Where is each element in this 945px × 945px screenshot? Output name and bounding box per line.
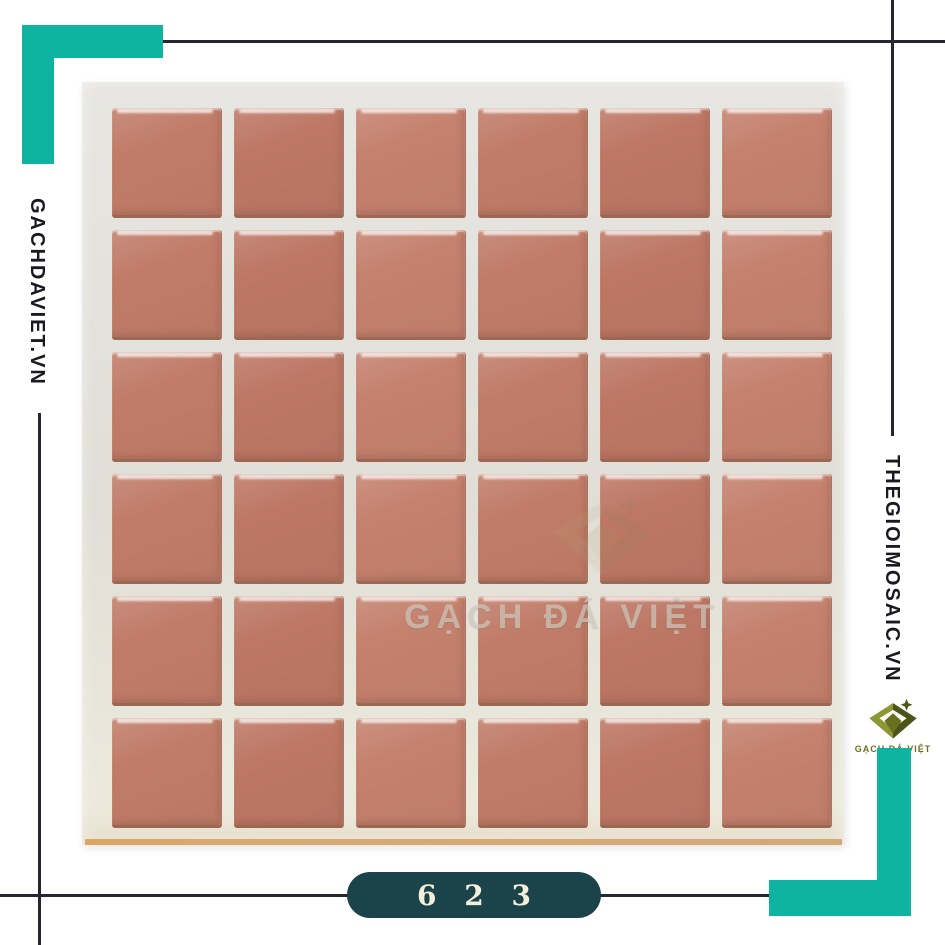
site-text-right: THEGIOIMOSAIC.VN <box>880 455 903 683</box>
mosaic-tile <box>722 596 832 706</box>
mosaic-tile <box>600 108 710 218</box>
mosaic-tile <box>234 352 344 462</box>
mosaic-tile <box>478 718 588 828</box>
mosaic-tile <box>356 474 466 584</box>
mosaic-tile <box>478 474 588 584</box>
mosaic-tile <box>600 596 710 706</box>
mosaic-tile <box>478 596 588 706</box>
mosaic-tile <box>112 108 222 218</box>
mosaic-tile <box>478 230 588 340</box>
mosaic-tile <box>722 718 832 828</box>
mosaic-tile <box>356 352 466 462</box>
mosaic-tile <box>112 474 222 584</box>
mosaic-tile <box>356 596 466 706</box>
sheet-bottom-edge <box>85 839 842 845</box>
mosaic-tile <box>356 230 466 340</box>
mosaic-tile <box>478 352 588 462</box>
mosaic-tile <box>234 718 344 828</box>
mosaic-tile <box>356 718 466 828</box>
mosaic-tile <box>478 108 588 218</box>
corner-bar-vertical <box>877 748 911 916</box>
mosaic-tile <box>722 108 832 218</box>
mosaic-tile <box>356 108 466 218</box>
mosaic-tile <box>112 718 222 828</box>
product-code-badge: 6 2 3 <box>347 872 601 918</box>
mosaic-tile <box>600 474 710 584</box>
mosaic-tile <box>722 230 832 340</box>
brand-logo: GẠCH ĐÁ VIỆT <box>845 698 941 754</box>
product-photo-stage: GACHDAVIET.VN THEGIOIMOSAIC.VN GẠCH ĐÁ V… <box>0 0 945 945</box>
mosaic-tile <box>234 108 344 218</box>
tile-sheet: GẠCH ĐÁ VIỆT <box>82 82 844 845</box>
frame-line-left <box>38 413 41 945</box>
mosaic-tile <box>112 352 222 462</box>
mosaic-tile <box>234 596 344 706</box>
mosaic-tile <box>600 718 710 828</box>
frame-line-top <box>163 40 945 43</box>
gach-da-viet-logo-icon <box>866 698 920 742</box>
tile-grid <box>82 82 844 845</box>
mosaic-tile <box>600 230 710 340</box>
mosaic-tile <box>234 474 344 584</box>
mosaic-tile <box>722 474 832 584</box>
mosaic-tile <box>112 596 222 706</box>
mosaic-tile <box>234 230 344 340</box>
product-code: 6 2 3 <box>408 879 540 912</box>
mosaic-tile <box>600 352 710 462</box>
site-text-left: GACHDAVIET.VN <box>25 198 48 386</box>
mosaic-tile <box>722 352 832 462</box>
frame-line-right <box>891 0 894 436</box>
mosaic-tile <box>112 230 222 340</box>
corner-bar-vertical <box>22 25 54 164</box>
